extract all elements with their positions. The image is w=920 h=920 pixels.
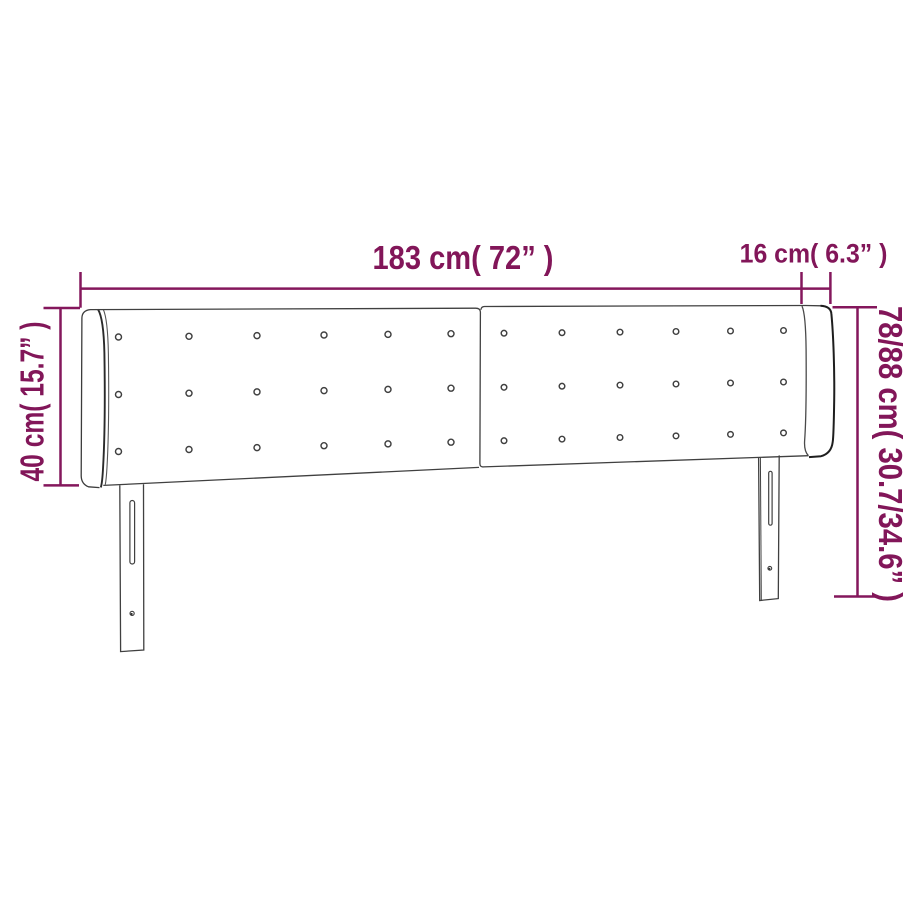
svg-text:78/88 cm( 30.7/34.6” ): 78/88 cm( 30.7/34.6” ) [872, 306, 909, 602]
svg-text:16 cm( 6.3” ): 16 cm( 6.3” ) [740, 239, 888, 269]
svg-text:183 cm( 72” ): 183 cm( 72” ) [373, 239, 554, 276]
svg-text:40 cm( 15.7” ): 40 cm( 15.7” ) [14, 322, 51, 482]
